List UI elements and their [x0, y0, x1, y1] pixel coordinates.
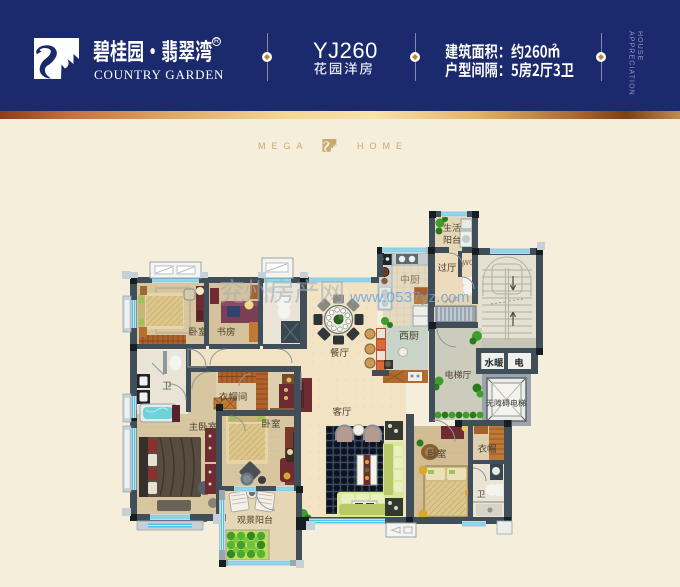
svg-text:www.0537yz.com: www.0537yz.com — [349, 289, 470, 306]
svg-text:2: 2 — [552, 42, 557, 52]
